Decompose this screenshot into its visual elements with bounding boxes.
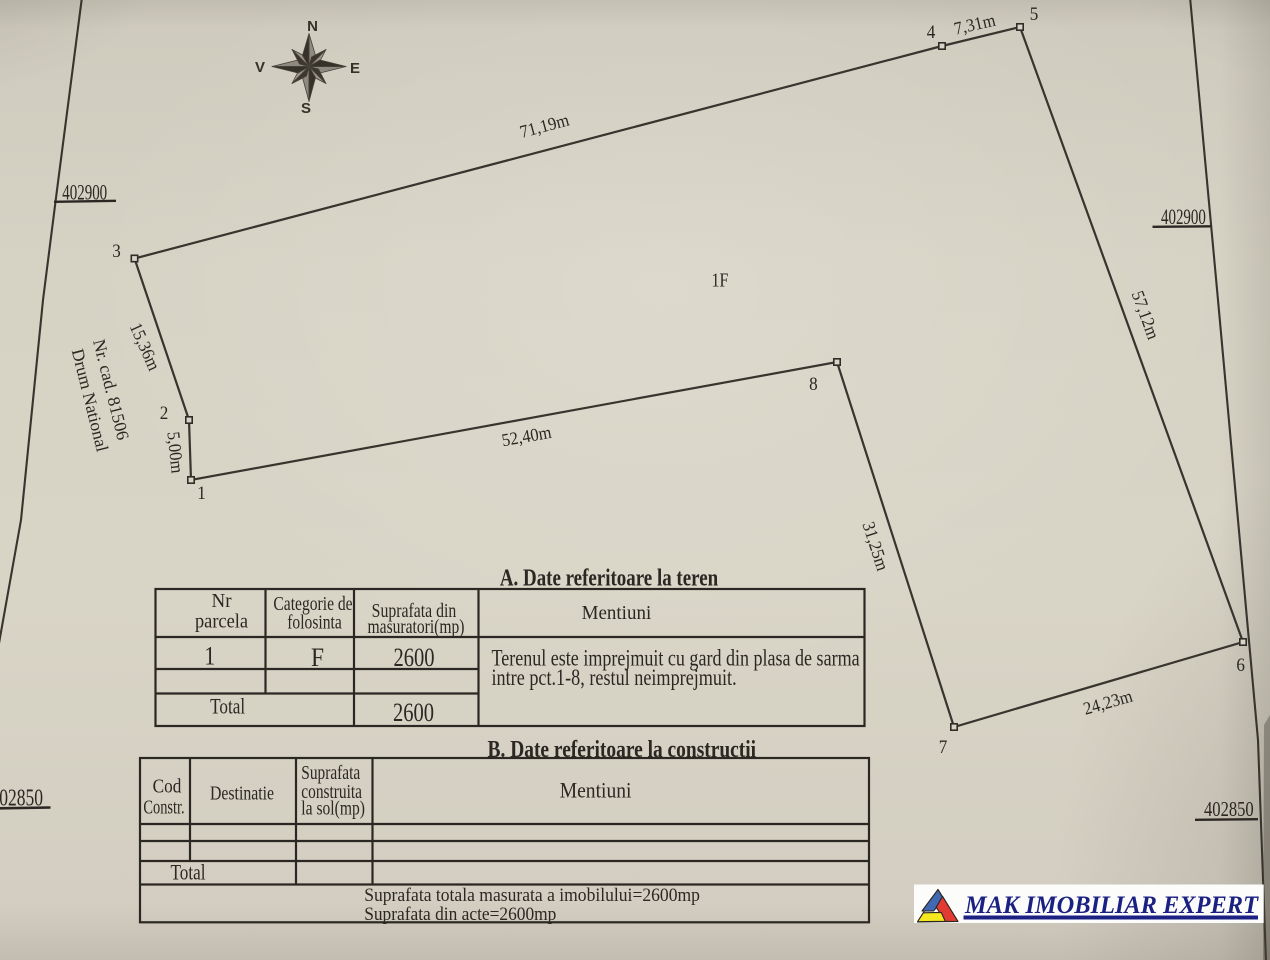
svg-text:Mentiuni: Mentiuni <box>560 777 632 802</box>
svg-text:Nr. cad. 81506Drum National: Nr. cad. 81506Drum National <box>67 337 135 454</box>
svg-text:1F: 1F <box>712 269 729 291</box>
svg-text:2: 2 <box>160 402 169 423</box>
svg-text:Constr.: Constr. <box>143 795 184 818</box>
svg-text:N: N <box>307 18 318 35</box>
svg-text:31,25m: 31,25m <box>858 519 892 573</box>
svg-text:52,40m: 52,40m <box>500 422 553 450</box>
svg-text:4: 4 <box>927 21 936 42</box>
svg-text:masuratori(mp): masuratori(mp) <box>368 615 465 638</box>
svg-text:57,12m: 57,12m <box>1128 288 1164 342</box>
svg-text:2600: 2600 <box>393 644 434 673</box>
svg-text:Suprafata din acte=2600mp: Suprafata din acte=2600mp <box>364 904 556 925</box>
svg-text:1: 1 <box>197 482 206 503</box>
svg-text:S: S <box>301 100 311 117</box>
svg-text:F: F <box>311 644 324 672</box>
svg-text:Mentiuni: Mentiuni <box>582 602 652 624</box>
svg-text:2600: 2600 <box>393 699 434 728</box>
svg-text:5,00m: 5,00m <box>163 431 187 475</box>
svg-text:V: V <box>255 59 265 76</box>
svg-text:intre pct.1-8, restul neimprej: intre pct.1-8, restul neimprejmuit. <box>492 666 737 690</box>
svg-text:E: E <box>350 60 360 77</box>
svg-text:la sol(mp): la sol(mp) <box>301 797 365 820</box>
svg-text:5: 5 <box>1030 3 1039 24</box>
svg-text:71,19m: 71,19m <box>518 110 572 142</box>
svg-text:1: 1 <box>204 643 215 671</box>
svg-text:Total: Total <box>170 861 205 886</box>
svg-text:folosinta: folosinta <box>287 611 342 633</box>
svg-text:MAK IMOBILIAR EXPERT: MAK IMOBILIAR EXPERT <box>964 890 1259 919</box>
svg-text:Total: Total <box>210 695 245 720</box>
svg-text:6: 6 <box>1236 654 1245 675</box>
svg-text:8: 8 <box>809 373 818 394</box>
svg-text:3: 3 <box>112 240 121 261</box>
svg-text:Destinatie: Destinatie <box>210 782 274 804</box>
svg-text:A. Date referitoare la teren: A. Date referitoare la teren <box>500 564 718 591</box>
svg-text:Suprafata totala masurata a im: Suprafata totala masurata a imobilului=2… <box>364 884 700 905</box>
svg-text:402850: 402850 <box>1204 798 1254 821</box>
svg-text:7: 7 <box>939 736 948 757</box>
svg-text:Nr: Nr <box>211 591 232 613</box>
svg-text:parcela: parcela <box>195 611 249 633</box>
svg-text:24,23m: 24,23m <box>1081 686 1135 719</box>
